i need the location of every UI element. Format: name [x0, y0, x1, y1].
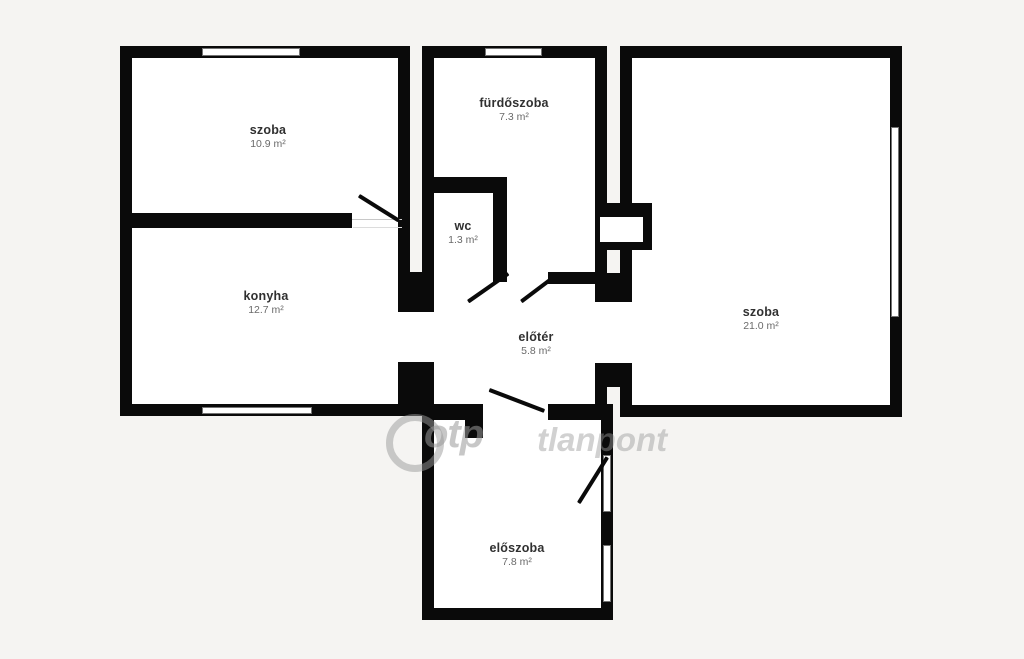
window: [202, 407, 312, 414]
window: [485, 48, 542, 56]
room-label-szoba-2: szoba 21.0 m²: [743, 305, 779, 332]
room-area: 7.8 m²: [489, 556, 544, 568]
room-name: szoba: [743, 305, 779, 319]
wall-segment: [410, 272, 422, 312]
room-label-szoba-1: szoba 10.9 m²: [250, 123, 286, 150]
room-area: 1.3 m²: [448, 234, 478, 246]
wall-segment: [120, 213, 352, 228]
window: [202, 48, 300, 56]
room-floor: [404, 312, 434, 362]
wall-segment: [398, 362, 410, 416]
wall-segment: [422, 608, 613, 620]
room-name: fürdőszoba: [479, 96, 548, 110]
room-name: előtér: [518, 330, 553, 344]
room-floor: [126, 52, 404, 410]
room-floor: [626, 52, 896, 411]
wall-segment: [493, 193, 507, 282]
room-area: 10.9 m²: [250, 138, 286, 150]
wall-segment: [422, 362, 434, 404]
wall-segment: [620, 405, 902, 417]
wall-segment: [410, 362, 422, 416]
room-label-konyha: konyha 12.7 m²: [244, 289, 289, 316]
room-area: 5.8 m²: [518, 345, 553, 357]
wall-segment: [422, 177, 507, 193]
floor-plan: szoba 10.9 m² fürdőszoba 7.3 m² wc 1.3 m…: [0, 0, 1024, 659]
wall-segment: [620, 46, 632, 302]
window: [603, 545, 611, 602]
wall-segment: [398, 46, 410, 312]
wall-segment: [548, 272, 607, 284]
room-name: konyha: [244, 289, 289, 303]
room-name: előszoba: [489, 541, 544, 555]
room-area: 7.3 m²: [479, 111, 548, 123]
watermark-text-ingatlanpont: tlanpont: [537, 421, 667, 459]
room-label-wc: wc 1.3 m²: [448, 219, 478, 246]
window: [891, 127, 899, 317]
wall-segment: [120, 46, 132, 416]
room-area: 21.0 m²: [743, 320, 779, 332]
door-threshold-line: [353, 227, 402, 228]
wall-niche: [600, 217, 643, 242]
room-name: szoba: [250, 123, 286, 137]
room-label-eloter: előtér 5.8 m²: [518, 330, 553, 357]
room-floor: [601, 302, 626, 363]
room-label-eloszoba: előszoba 7.8 m²: [489, 541, 544, 568]
wall-segment: [620, 46, 902, 58]
wall-segment: [595, 46, 607, 302]
room-area: 12.7 m²: [244, 304, 289, 316]
watermark-text-otp: otp: [424, 412, 483, 457]
room-label-furdoszoba: fürdőszoba 7.3 m²: [479, 96, 548, 123]
room-name: wc: [448, 219, 478, 233]
